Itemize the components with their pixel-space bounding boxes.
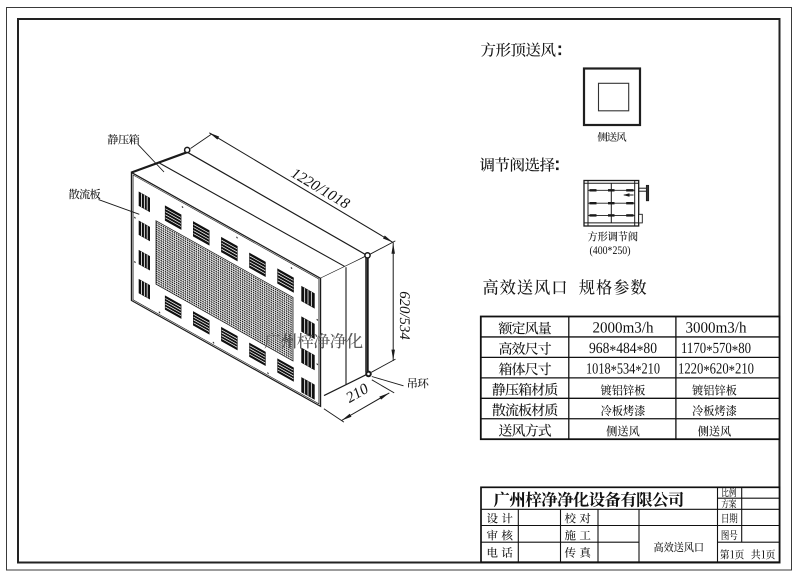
svg-text:3000m3/h: 3000m3/h (686, 320, 747, 337)
svg-text:1220/1018: 1220/1018 (288, 165, 353, 213)
svg-text:(400*250): (400*250) (590, 245, 631, 257)
svg-text:1220*​620*​210: 1220*​620*​210 (678, 361, 754, 380)
svg-text:1018*​534*​210: 1018*​534*​210 (586, 361, 660, 380)
svg-text:968*​484*​80: 968*​484*​80 (589, 340, 657, 359)
svg-text:2000m3/h: 2000m3/h (593, 320, 654, 337)
svg-text:1170*​570*​80: 1170*​570*​80 (681, 340, 751, 359)
svg-text:620/534: 620/534 (396, 291, 412, 340)
